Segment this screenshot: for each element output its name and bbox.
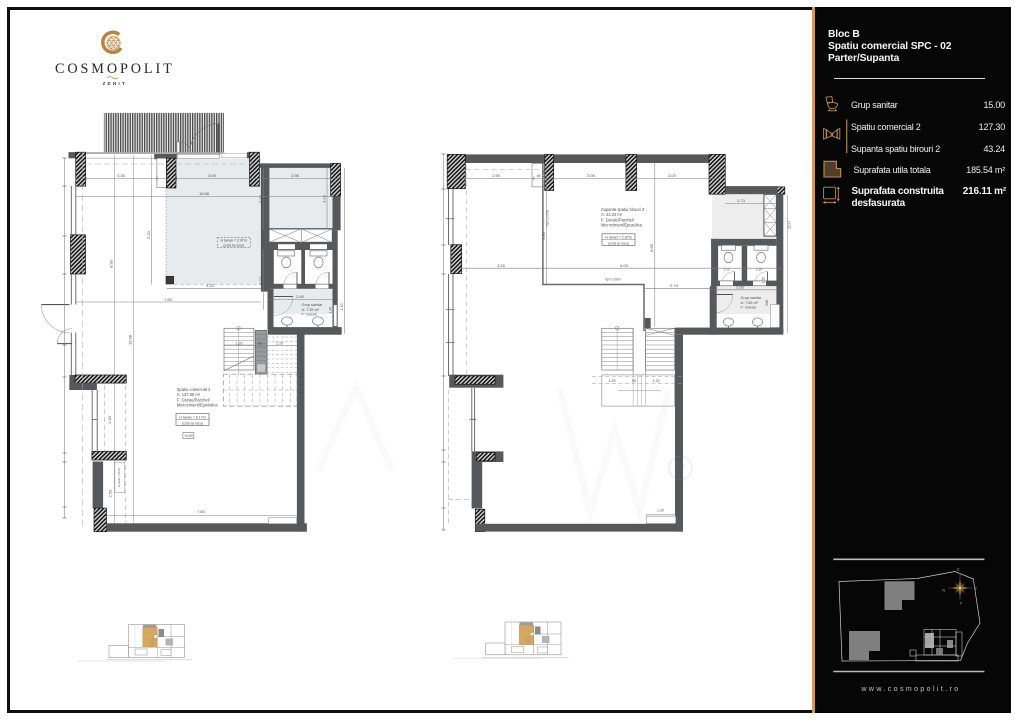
svg-text:5.20: 5.20 bbox=[146, 230, 151, 239]
svg-text:F: Gresie: F: Gresie bbox=[302, 313, 318, 317]
svg-text:2.70: 2.70 bbox=[670, 283, 679, 288]
svg-text:4.20: 4.20 bbox=[206, 283, 215, 288]
svg-text:1.52: 1.52 bbox=[333, 249, 337, 256]
svg-text:2.73: 2.73 bbox=[737, 198, 746, 203]
svg-text:H tavan = 5.87m: H tavan = 5.87m bbox=[117, 468, 121, 487]
svg-text:1.15: 1.15 bbox=[762, 277, 766, 283]
svg-text:hp=1.00m: hp=1.00m bbox=[605, 278, 620, 282]
svg-text:4.23: 4.23 bbox=[258, 276, 263, 285]
svg-text:H tavan = 2.97m: H tavan = 2.97m bbox=[220, 239, 246, 243]
svg-text:P: P bbox=[675, 461, 686, 478]
svg-text:V: V bbox=[960, 602, 963, 606]
svg-text:1.12: 1.12 bbox=[723, 268, 730, 272]
svg-text:S: S bbox=[974, 587, 977, 591]
svg-text:3.26: 3.26 bbox=[497, 263, 506, 268]
svg-text:45: 45 bbox=[537, 174, 541, 178]
svg-text:15.08: 15.08 bbox=[128, 334, 133, 345]
svg-text:2.60: 2.60 bbox=[736, 285, 745, 290]
svg-text:Microciment/Epoxidica: Microciment/Epoxidica bbox=[177, 403, 219, 408]
svg-text:2.60: 2.60 bbox=[296, 294, 305, 299]
svg-text:1.20: 1.20 bbox=[653, 379, 660, 383]
svg-text:N: N bbox=[942, 589, 945, 593]
svg-text:50: 50 bbox=[632, 379, 636, 383]
svg-text:E: E bbox=[957, 568, 960, 572]
svg-text:3.70: 3.70 bbox=[258, 194, 263, 203]
svg-text:1.10: 1.10 bbox=[276, 341, 283, 345]
svg-text:2.30: 2.30 bbox=[107, 415, 112, 424]
svg-text:F: Gresie: F: Gresie bbox=[741, 306, 757, 310]
svg-text:H tavan = 6.17m: H tavan = 6.17m bbox=[179, 415, 205, 419]
svg-text:Grup sanitar: Grup sanitar bbox=[302, 303, 324, 307]
svg-text:7.80: 7.80 bbox=[197, 509, 206, 514]
svg-text:6.00: 6.00 bbox=[620, 263, 629, 268]
svg-text:3.66: 3.66 bbox=[765, 300, 769, 306]
svg-text:A: 7.35 m²: A: 7.35 m² bbox=[302, 308, 320, 312]
svg-text:2.50: 2.50 bbox=[108, 489, 113, 498]
svg-text:1.40: 1.40 bbox=[329, 307, 333, 313]
svg-text:23.97: 23.97 bbox=[788, 221, 792, 229]
svg-text:(cota la rosu): (cota la rosu) bbox=[182, 421, 203, 425]
svg-text:A: 7.65 m²: A: 7.65 m² bbox=[741, 301, 759, 305]
svg-text:2.20: 2.20 bbox=[756, 268, 763, 272]
svg-text:2.98: 2.98 bbox=[291, 173, 300, 178]
svg-text:1.20: 1.20 bbox=[236, 341, 243, 345]
svg-text:60: 60 bbox=[258, 341, 262, 345]
svg-text:(cota la rosu): (cota la rosu) bbox=[223, 243, 244, 247]
svg-text:1.20: 1.20 bbox=[657, 509, 664, 513]
svg-text:2.90: 2.90 bbox=[492, 173, 501, 178]
svg-text:3.23: 3.23 bbox=[321, 194, 326, 203]
svg-text:3.05: 3.05 bbox=[587, 173, 596, 178]
svg-text:R: R bbox=[611, 220, 620, 235]
svg-text:10.68: 10.68 bbox=[199, 191, 210, 196]
svg-text:7.60: 7.60 bbox=[164, 297, 173, 302]
svg-text:8.90: 8.90 bbox=[109, 259, 114, 268]
svg-text:Grup sanitar: Grup sanitar bbox=[741, 296, 763, 300]
svg-text:3.00: 3.00 bbox=[668, 173, 677, 178]
svg-text:6.68: 6.68 bbox=[649, 243, 654, 252]
svg-text:1.40: 1.40 bbox=[340, 304, 344, 311]
svg-text:+0.50: +0.50 bbox=[184, 434, 193, 438]
svg-text:3.05: 3.05 bbox=[208, 173, 217, 178]
svg-text:3.35: 3.35 bbox=[117, 173, 126, 178]
svg-text:4.80: 4.80 bbox=[542, 232, 546, 239]
svg-text:3.28: 3.28 bbox=[542, 170, 546, 177]
svg-text:(cota la rosu): (cota la rosu) bbox=[608, 241, 629, 245]
svg-text:1.29: 1.29 bbox=[609, 379, 616, 383]
svg-text:hp=1.00m: hp=1.00m bbox=[546, 210, 550, 225]
